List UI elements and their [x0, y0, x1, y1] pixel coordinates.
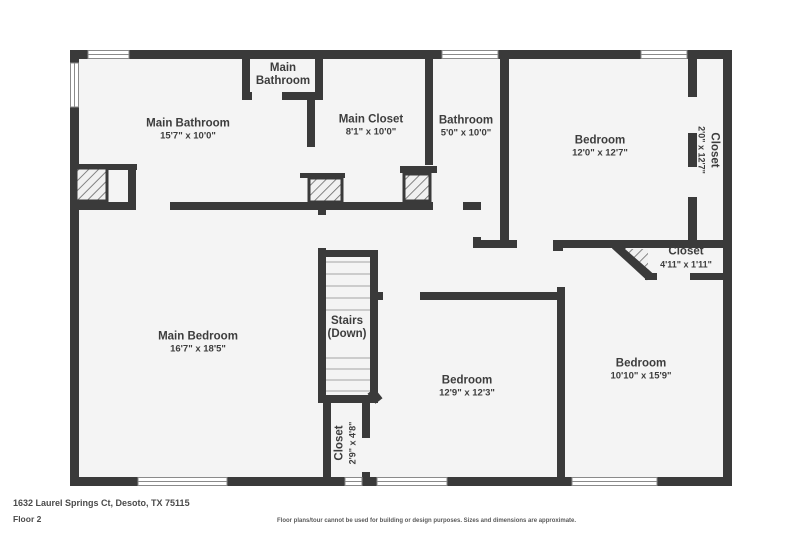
room-name: Bathroom — [439, 115, 493, 128]
room-name: Stairs — [328, 315, 367, 328]
room-dims: 16'7" x 18'5" — [158, 344, 238, 356]
room-label-bedroom-upper: Bedroom 12'0" x 12'7" — [572, 135, 628, 160]
room-name: Closet — [660, 246, 712, 259]
room-name: Main Bathroom — [250, 62, 316, 88]
room-dims: 10'10" x 15'9" — [610, 371, 671, 383]
room-dims: 8'1" x 10'0" — [339, 127, 404, 139]
room-dims: (Down) — [328, 328, 367, 341]
room-label-main-bathroom-upper: Main Bathroom — [250, 62, 316, 88]
room-name: Main Closet — [339, 114, 404, 127]
shower-hatch — [76, 168, 107, 201]
room-name: Main Bedroom — [158, 331, 238, 344]
room-name: Main Bathroom — [146, 118, 230, 131]
shower-hatch — [404, 174, 430, 201]
room-dims: 12'9" x 12'3" — [439, 388, 495, 400]
room-label-stairs: Stairs (Down) — [328, 315, 367, 341]
floor-number-label: Floor 2 — [13, 514, 41, 524]
room-label-bedroom-right: Bedroom 10'10" x 15'9" — [610, 358, 671, 383]
room-name: Bedroom — [439, 375, 495, 388]
room-label-closet-lower: Closet 2'9" x 4'8" — [334, 422, 359, 465]
room-label-closet-corner: Closet 4'11" x 1'11" — [660, 246, 712, 271]
room-label-bedroom-middle: Bedroom 12'9" x 12'3" — [439, 375, 495, 400]
room-label-main-bathroom: Main Bathroom 15'7" x 10'0" — [146, 118, 230, 143]
room-dims: 15'7" x 10'0" — [146, 131, 230, 143]
room-label-main-bedroom: Main Bedroom 16'7" x 18'5" — [158, 331, 238, 356]
room-dims: 2'0" x 12'7" — [696, 126, 708, 174]
room-dims: 5'0" x 10'0" — [439, 128, 493, 140]
room-label-main-closet: Main Closet 8'1" x 10'0" — [339, 114, 404, 139]
room-dims: 2'9" x 4'8" — [347, 422, 359, 465]
room-label-closet-right: Closet 2'0" x 12'7" — [696, 126, 721, 174]
floor-plan-page: Main Bathroom Main Bathroom 15'7" x 10'0… — [0, 0, 800, 533]
room-dims: 4'11" x 1'11" — [660, 259, 712, 271]
room-name: Bedroom — [610, 358, 671, 371]
room-label-bathroom: Bathroom 5'0" x 10'0" — [439, 115, 493, 140]
room-dims: 12'0" x 12'7" — [572, 148, 628, 160]
shower-hatch — [309, 178, 342, 202]
property-address: 1632 Laurel Springs Ct, Desoto, TX 75115 — [13, 498, 190, 508]
room-name: Closet — [334, 422, 347, 465]
room-name: Closet — [708, 126, 721, 174]
room-name: Bedroom — [572, 135, 628, 148]
disclaimer-text: Floor plans/tour cannot be used for buil… — [277, 518, 576, 524]
